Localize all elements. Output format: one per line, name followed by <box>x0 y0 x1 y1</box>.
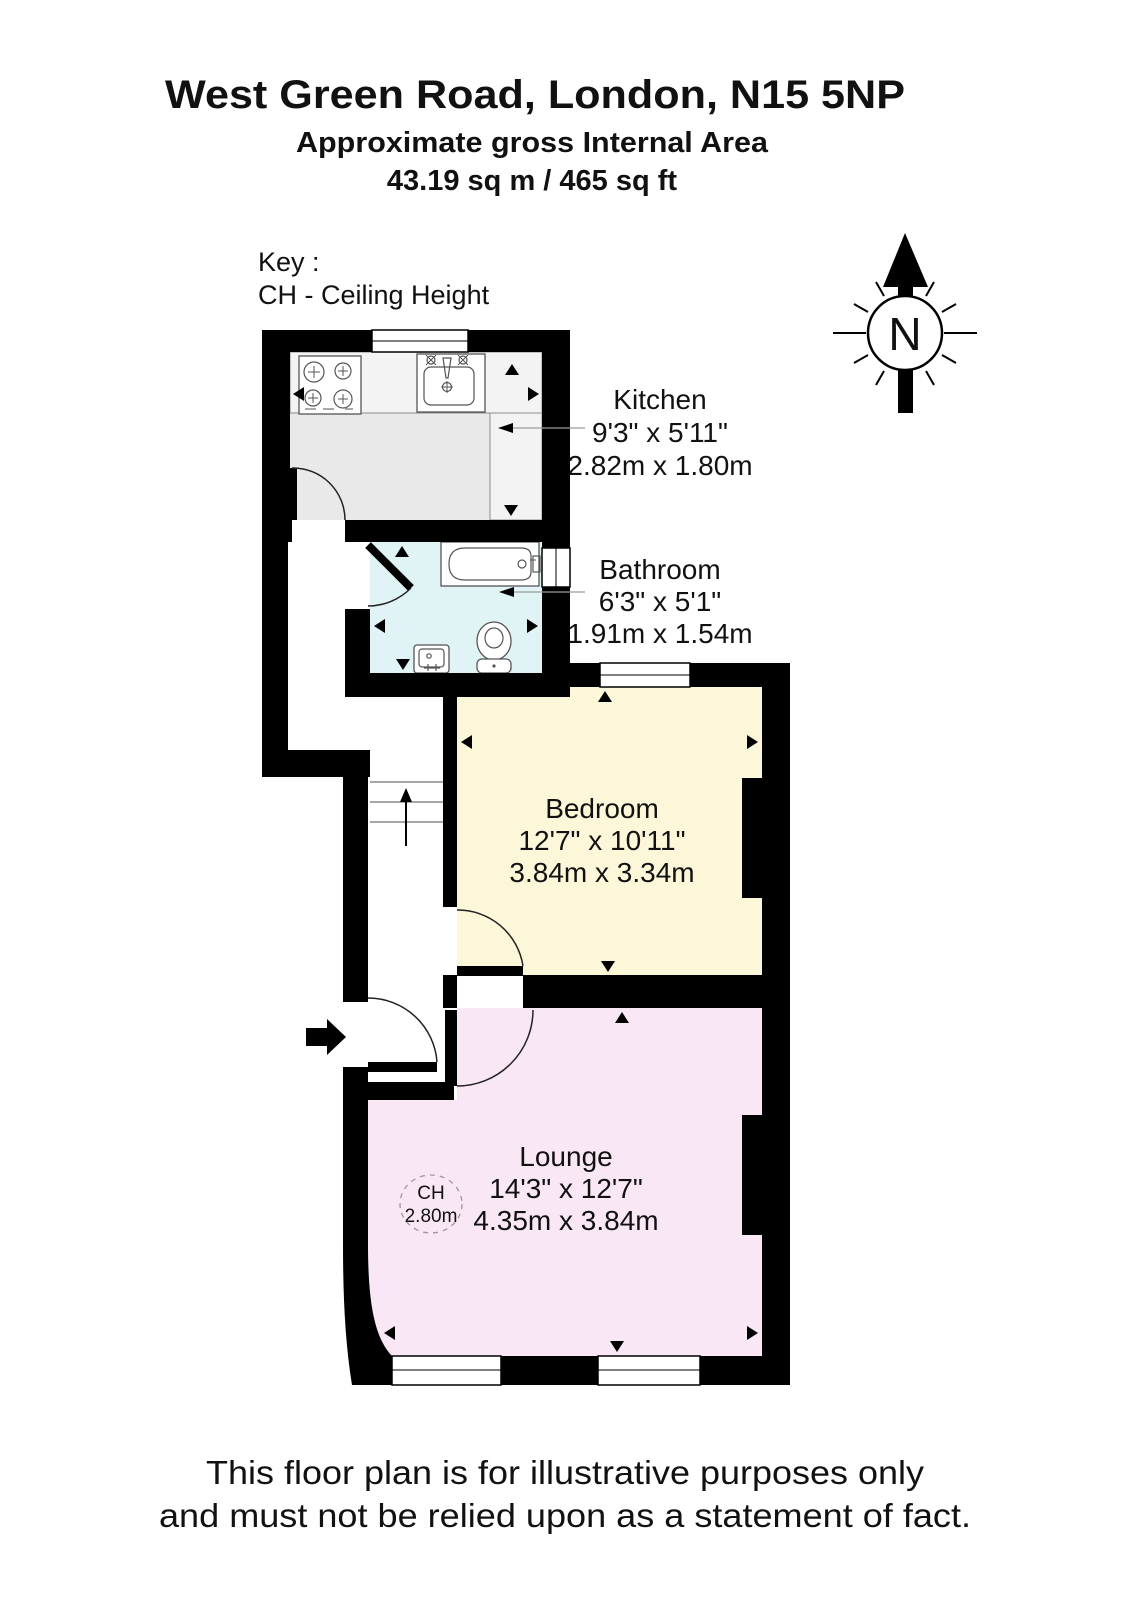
bathtub-icon <box>441 542 540 586</box>
ceiling-height-label: CH <box>417 1183 444 1204</box>
kitchen-window-icon <box>372 330 468 352</box>
stove-icon <box>299 356 361 414</box>
entrance-arrow-icon <box>306 1019 346 1055</box>
kitchen-label: Kitchen 9'3" x 5'11" 2.82m x 1.80m <box>567 384 752 481</box>
bedroom-chimney-breast <box>742 778 762 898</box>
toilet-icon <box>477 622 511 673</box>
bedroom-imperial: 12'7" x 10'11" <box>518 825 685 856</box>
ceiling-height-value: 2.80m <box>405 1206 458 1227</box>
compass-north-label: N <box>888 308 921 360</box>
key-ceiling-height: CH - Ceiling Height <box>258 280 490 310</box>
lounge-window-left-icon <box>392 1356 501 1385</box>
lounge-chimney-breast <box>742 1115 762 1235</box>
bathroom-label: Bathroom 6'3" x 5'1" 1.91m x 1.54m <box>567 554 752 649</box>
north-compass-icon: N <box>833 233 977 413</box>
key-title: Key : <box>258 247 320 277</box>
disclaimer-line-2: and must not be relied upon as a stateme… <box>159 1497 971 1534</box>
lounge-window-right-icon <box>598 1356 700 1385</box>
bedroom-metric: 3.84m x 3.34m <box>509 857 694 888</box>
kitchen-imperial: 9'3" x 5'11" <box>592 417 728 448</box>
stairs-icon <box>370 782 443 846</box>
kitchen-metric: 2.82m x 1.80m <box>567 450 752 481</box>
floorplan-page: West Green Road, London, N15 5NP Approxi… <box>0 0 1129 1600</box>
kitchen-name: Kitchen <box>613 384 706 415</box>
bathroom-window-icon <box>542 548 570 587</box>
lounge-metric: 4.35m x 3.84m <box>473 1205 658 1236</box>
washbasin-icon <box>414 645 449 673</box>
bathroom-metric: 1.91m x 1.54m <box>567 618 752 649</box>
disclaimer-line-1: This floor plan is for illustrative purp… <box>206 1454 925 1491</box>
bathroom-imperial: 6'3" x 5'1" <box>599 586 721 617</box>
subtitle-area: Approximate gross Internal Area <box>296 127 769 159</box>
bathroom-name: Bathroom <box>599 554 720 585</box>
entrance-door-icon <box>368 998 437 1072</box>
lounge-name: Lounge <box>519 1141 612 1172</box>
bedroom-name: Bedroom <box>545 793 659 824</box>
kitchen-sink-icon <box>417 354 485 412</box>
subtitle-size: 43.19 sq m / 465 sq ft <box>387 165 677 197</box>
bedroom-window-icon <box>600 663 690 687</box>
page-title: West Green Road, London, N15 5NP <box>165 73 905 117</box>
floorplan-drawing: West Green Road, London, N15 5NP Approxi… <box>0 0 1129 1600</box>
lounge-imperial: 14'3" x 12'7" <box>489 1173 643 1204</box>
